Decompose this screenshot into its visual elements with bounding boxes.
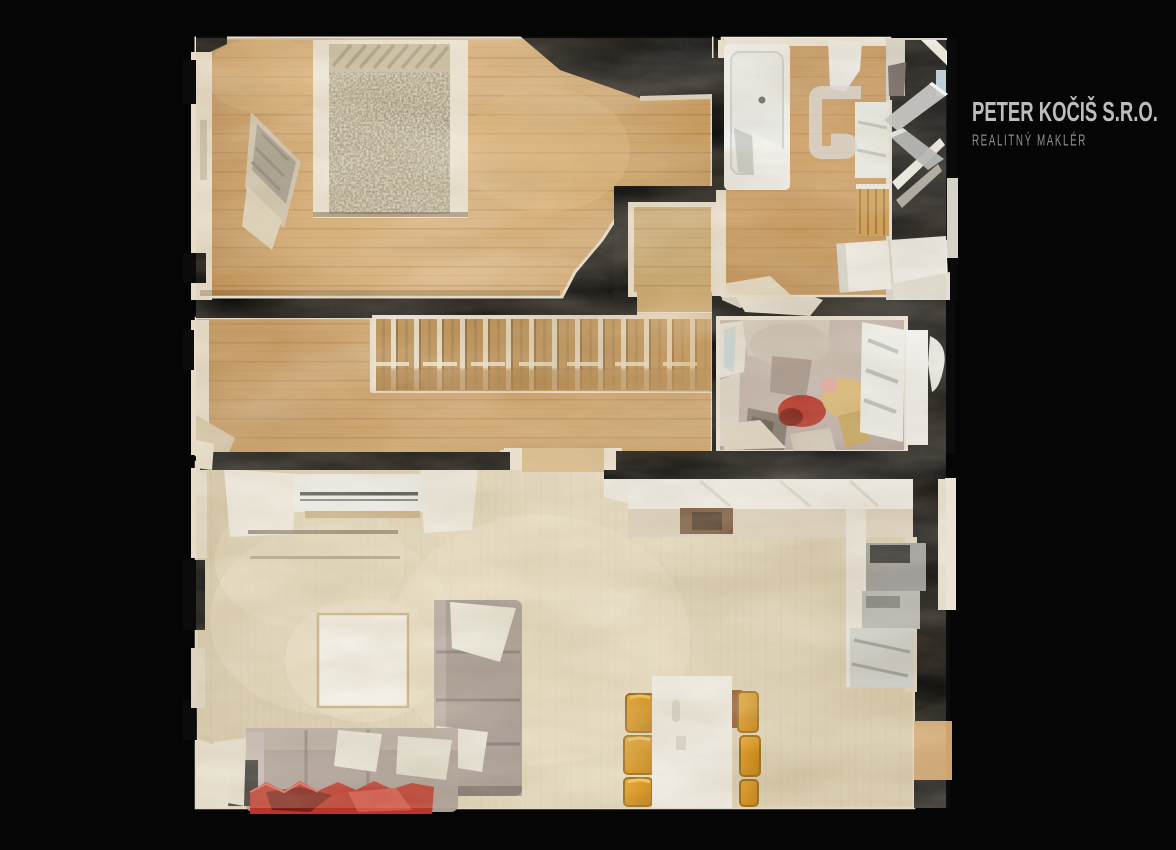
svg-text:PETER KOČIŠ S.R.O.: PETER KOČIŠ S.R.O. [972, 95, 1158, 128]
svg-text:REALITNÝ MAKLÉR: REALITNÝ MAKLÉR [972, 131, 1087, 149]
